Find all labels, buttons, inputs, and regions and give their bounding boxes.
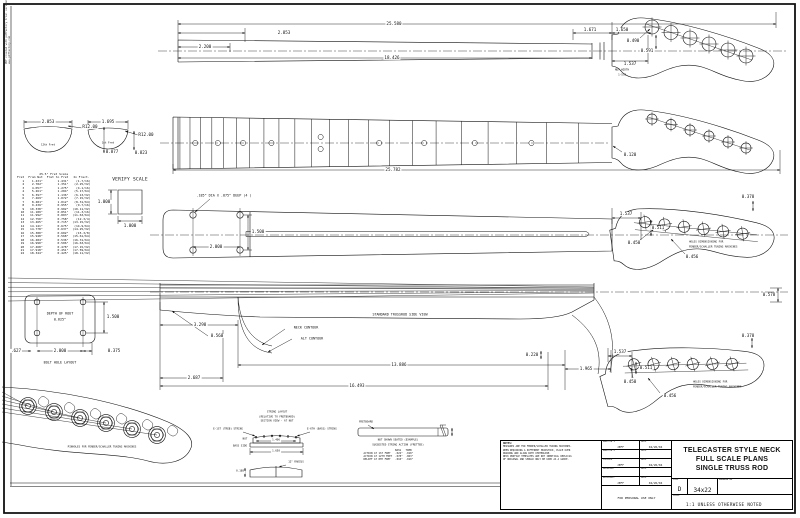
- dim-bolt-left: .627: [10, 349, 22, 353]
- dim-13886: 13.886: [390, 363, 407, 367]
- action-detail: [358, 425, 452, 436]
- action-cell: RELIEF AT 8TH FRET: [362, 458, 394, 461]
- sv-note-1: HOLES DIMENSIONING FOR: [692, 382, 728, 385]
- field-cell: DATE04/26/04: [640, 477, 671, 485]
- action-caption-1: NUT SHOWN SEATED (EXAMPLE): [377, 440, 420, 443]
- dim-2687: 2.687: [187, 376, 202, 380]
- dim-sv-sp: 0.456: [663, 394, 678, 398]
- dim-pattern-v: 1.500: [251, 230, 266, 234]
- dim-section2-width: 1.695: [101, 120, 116, 124]
- field-cell: RELEASED:JEFF: [602, 477, 640, 485]
- field-cell: DATE: [640, 450, 671, 458]
- section2-label: 1st Fret: [101, 143, 116, 146]
- alt-contour-label: ALT CONTOUR: [300, 337, 324, 340]
- dim-pattern-h: 2.000: [209, 245, 224, 249]
- top-view: [178, 12, 776, 81]
- dim-string-spacing: 1.406: [271, 440, 281, 443]
- field-row: DRAFTER 2DATE: [602, 450, 671, 459]
- dim-2200: 2.200: [198, 45, 213, 49]
- tuners-view: [2, 387, 192, 463]
- fret-cell: 18.344": [26, 252, 44, 255]
- dim-nut-width: 1.650: [271, 451, 281, 454]
- drawing-no-cell: DRAWING NO: [718, 479, 792, 494]
- drawing-no-label: DRAWING NO: [719, 479, 732, 482]
- dim-bv-sp: 0.456: [685, 255, 700, 259]
- sheet-border: [4, 4, 795, 513]
- dim-bolt-h: 2.000: [53, 349, 68, 353]
- title-block: NOTES: MEASURES ARE FOR FENDER/SCHALLER …: [500, 440, 793, 510]
- bv-note-2: FENDER/SCHALLER TUNING MACHINES: [688, 247, 738, 250]
- verify-scale: [108, 190, 142, 224]
- title-line-3: SINGLE TRUSS ROD: [696, 465, 768, 473]
- string-layout-title-3: SECTION VIEW - AT NUT: [260, 421, 295, 424]
- field-cell: DATE: [640, 468, 671, 476]
- size-value: D: [672, 487, 687, 493]
- dim-bv-off: 0.511: [651, 226, 666, 230]
- rout-depth-line2: 0.625": [53, 318, 67, 321]
- verify-scale-label: VERIFY SCALE: [111, 179, 149, 184]
- dim-0220: 0.220: [525, 353, 540, 357]
- dim-overall-length: 25.580: [385, 22, 402, 26]
- treble-string-label: E-1ST (TREB) STRING: [212, 429, 244, 432]
- dim-section2-thick: 0.823: [134, 151, 149, 155]
- fretboard-label: FRETBOARD: [358, 422, 374, 425]
- trussrod-note: STANDARD TRUSSROD SIDE VIEW: [371, 313, 428, 316]
- position-marker-dot: [318, 134, 323, 139]
- section1-label: 12th Fret: [40, 145, 56, 148]
- action-row: RELIEF AT 8TH FRET.010".010": [362, 458, 415, 461]
- title-line-2: FULL SCALE PLANS: [696, 456, 768, 464]
- bv-note-1: HOLES DIMENSIONING FOR: [688, 242, 724, 245]
- notes-cell: NOTES: MEASURES ARE FOR FENDER/SCHALLER …: [501, 441, 602, 509]
- dim-2853: 2.853: [277, 31, 292, 35]
- dim-board-thick: 0.188: [235, 471, 245, 474]
- sheet-size: 34x22: [688, 479, 718, 494]
- dim-tuner-offset: 0.591: [640, 49, 655, 53]
- size-row: SIZE D 34x22 DRAWING NO: [672, 479, 792, 495]
- dim-sv-edge: 0.378: [741, 334, 756, 338]
- bass-side-label: BASS SIDE: [232, 446, 248, 449]
- action-caption-2: SUGGESTED STRING ACTION (FRETTED): [371, 445, 425, 448]
- nut-width-note-2: 1-5/8: [617, 75, 627, 78]
- size-cell: SIZE D: [672, 479, 688, 494]
- dim-tuner-dia: 0.490: [626, 39, 641, 43]
- fret-cell: 22: [15, 252, 26, 255]
- scale-value: 1:1 UNLESS OTHERWISE NOTED: [686, 502, 762, 507]
- field-cell: CHECKEDJEFF: [602, 459, 640, 467]
- field-cell: APPROVED: [602, 468, 640, 476]
- dim-1650: 1.650: [615, 28, 630, 32]
- action-cell: .010": [394, 458, 405, 461]
- bolt-layout-caption: BOLT HOLE LAYOUT: [43, 361, 78, 364]
- notes-line: OF ORIGINAL AND SHOULD ONLY BE USED AS A…: [503, 458, 599, 461]
- fret-cell: 0.425": [45, 252, 71, 255]
- side-view: [8, 278, 782, 421]
- dim-overall-front: 25.782: [384, 168, 401, 172]
- dim-section1-thick: 0.877: [105, 150, 120, 154]
- bolt-hole-layout: [10, 295, 108, 355]
- dim-bolt-right: 0.375: [107, 349, 122, 353]
- dim-0578: 0.578: [762, 293, 777, 297]
- dim-bv-nut: 1.537: [619, 212, 634, 216]
- string-layout-title-1: STRING LAYOUT: [266, 412, 288, 415]
- position-marker-dot: [318, 146, 323, 151]
- nut-label: NUT: [242, 439, 249, 442]
- rout-depth-line1: DEPTH OF ROUT: [46, 312, 75, 315]
- scale-label: SCALE: [673, 495, 680, 498]
- margin-watermark: PDF created with pdfFactory trial versio…: [5, 0, 11, 64]
- sv-note-2: FENDER/SCHALLER TUNING MACHINES: [692, 387, 742, 390]
- action-cell: .010": [404, 458, 415, 461]
- dim-board-length: 18.426: [383, 56, 400, 60]
- string-layout-title-2: (RELATIVE TO FRETBOARD): [258, 416, 296, 419]
- radius-label: 12" RADIUS: [287, 462, 305, 465]
- neck-contour-label: NECK CONTOUR: [293, 326, 320, 329]
- field-cell: DRAFTER 2: [602, 450, 640, 458]
- personal-use-note: FOR PERSONAL USE ONLY: [602, 486, 671, 509]
- tuners-caption: PINHOLES FOR FENDER/SCHALLER TUNING MACH…: [67, 447, 138, 450]
- fret-scale-table: 25.5" Fret Scale FretFrom NutFret to Fre…: [15, 173, 92, 256]
- dim-bv-dia: 0.450: [627, 241, 642, 245]
- dim-section2-radius: R12.00: [137, 133, 154, 137]
- fret-row: 2218.344"0.425"(18-11/32): [15, 252, 92, 255]
- front-view: [24, 110, 780, 174]
- size-label: SIZE: [673, 479, 678, 482]
- dim-sv-dia: 0.450: [623, 380, 638, 384]
- title-line-1: TELECASTER STYLE NECK: [683, 447, 780, 455]
- nut-width-note-1: NUT WIDTH: [614, 70, 630, 73]
- verify-dim-v: 1.000: [97, 200, 112, 204]
- field-cell: DATE04/26/04: [640, 459, 671, 467]
- dim-3298: 3.298: [193, 323, 208, 327]
- field-cell: DATE04/26/04: [640, 441, 671, 449]
- watermark-line2: www.pdffactory.com: [8, 0, 11, 64]
- dim-sv-off: 0.511: [639, 366, 654, 370]
- dim-bv-edge: 0.378: [741, 195, 756, 199]
- dim-section1-radius: R12.00: [81, 125, 98, 129]
- back-headstock: [607, 191, 776, 276]
- dim-0120: 0.120: [623, 153, 638, 157]
- bass-string-label: E-6TH (BASS) STRING: [306, 429, 338, 432]
- dim-nut-to-hole: 1.537: [623, 62, 638, 66]
- dim-0560: 0.560: [210, 334, 225, 338]
- dim-1671: 1.671: [583, 28, 598, 32]
- blueprint-sheet: PDF created with pdfFactory trial versio…: [0, 0, 800, 518]
- title-column: TELECASTER STYLE NECK FULL SCALE PLANS S…: [672, 441, 792, 509]
- field-row: RELEASED:JEFFDATE04/26/04: [602, 477, 671, 486]
- scale-row: SCALE 1:1 UNLESS OTHERWISE NOTED: [672, 495, 792, 509]
- fields-column: DRAFTER 1JEFFDATE04/26/04DRAFTER 2DATECH…: [602, 441, 672, 509]
- dim-sv-nut: 1.537: [613, 350, 628, 354]
- fret-cell: (18-11/32): [70, 252, 92, 255]
- action-table: BASS TREB ACTION AT 1ST FRET.022".018"AC…: [362, 449, 415, 461]
- drawing-title: TELECASTER STYLE NECK FULL SCALE PLANS S…: [672, 441, 792, 479]
- field-cell: DRAFTER 1JEFF: [602, 441, 640, 449]
- verify-dim-h: 1.000: [123, 224, 138, 228]
- dim-1965: 1.965: [579, 367, 594, 371]
- dim-bolt-v: 1.500: [106, 315, 121, 319]
- pilot-hole-note: .185" DIA X .875" DEEP (4 ): [195, 194, 252, 197]
- dim-section1-width: 2.053: [41, 120, 56, 124]
- dim-16493: 16.493: [348, 384, 365, 388]
